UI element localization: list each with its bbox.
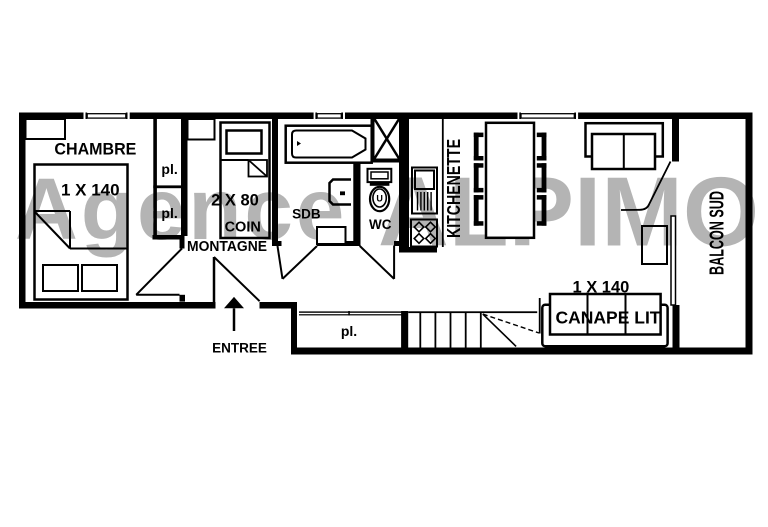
svg-text:1 X 140: 1 X 140 (61, 181, 120, 200)
svg-text:pl.: pl. (341, 323, 357, 339)
svg-text:BALCON SUD: BALCON SUD (707, 191, 729, 275)
svg-text:ENTREE: ENTREE (212, 341, 267, 356)
svg-text:COIN: COIN (225, 220, 261, 236)
svg-text:WC: WC (369, 217, 392, 232)
svg-text:CHAMBRE: CHAMBRE (54, 140, 136, 159)
svg-text:pl.: pl. (161, 205, 177, 221)
svg-text:MONTAGNE: MONTAGNE (187, 239, 267, 255)
svg-text:1 X 140: 1 X 140 (572, 278, 629, 296)
svg-text:KITCHENETTE: KITCHENETTE (444, 139, 464, 238)
svg-text:pl.: pl. (161, 161, 177, 177)
svg-text:SDB: SDB (292, 206, 321, 221)
svg-text:CANAPE LIT: CANAPE LIT (556, 308, 661, 328)
svg-text:U: U (376, 194, 383, 204)
svg-text:2 X 80: 2 X 80 (211, 191, 259, 209)
